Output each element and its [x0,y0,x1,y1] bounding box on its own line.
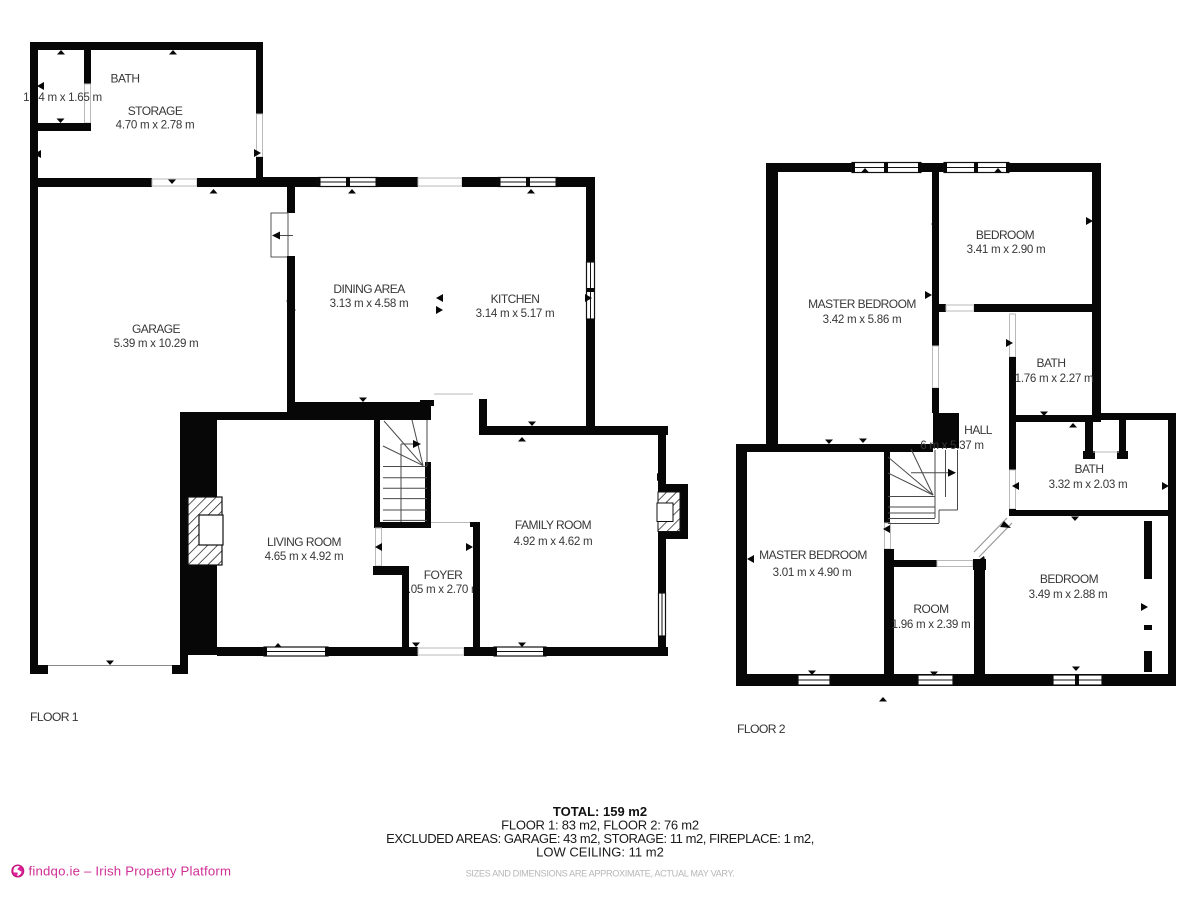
svg-text:1.96 m x 2.39 m: 1.96 m x 2.39 m [892,618,971,631]
svg-text:STORAGE: STORAGE [128,104,183,118]
svg-text:4.65 m x 4.92 m: 4.65 m x 4.92 m [265,550,344,563]
svg-text:4.92 m x 4.62 m: 4.92 m x 4.62 m [514,535,593,548]
svg-text:MASTER BEDROOM: MASTER BEDROOM [759,548,867,562]
svg-text:2.05 m x 2.70 m: 2.05 m x 2.70 m [402,583,481,596]
svg-text:KITCHEN: KITCHEN [491,292,540,306]
svg-text:BEDROOM: BEDROOM [1040,572,1099,586]
svg-text:FOYER: FOYER [424,568,463,582]
svg-text:5.39 m x 10.29 m: 5.39 m x 10.29 m [114,337,199,350]
svg-text:1.76 m x 2.27 m: 1.76 m x 2.27 m [1015,372,1094,385]
svg-text:FLOOR 1: FLOOR 1 [30,710,79,724]
svg-text:findqo.ie – Irish Property Pla: findqo.ie – Irish Property Platform [29,864,232,879]
svg-text:BATH: BATH [111,72,140,86]
svg-text:BATH: BATH [1075,462,1104,476]
svg-text:6 m x 5.37 m: 6 m x 5.37 m [920,439,983,452]
svg-text:FLOOR 2: FLOOR 2 [737,722,786,736]
svg-text:3.49 m x 2.88 m: 3.49 m x 2.88 m [1029,588,1108,601]
svg-text:GARAGE: GARAGE [132,322,181,336]
svg-text:SIZES AND DIMENSIONS ARE APPRO: SIZES AND DIMENSIONS ARE APPROXIMATE, AC… [466,869,735,879]
svg-text:DINING AREA: DINING AREA [333,282,405,296]
svg-text:4.70 m x 2.78 m: 4.70 m x 2.78 m [116,119,195,132]
svg-text:3.32 m x 2.03 m: 3.32 m x 2.03 m [1049,478,1128,491]
svg-text:FAMILY ROOM: FAMILY ROOM [515,518,592,532]
svg-text:3.14 m x 5.17 m: 3.14 m x 5.17 m [476,307,555,320]
svg-text:MASTER BEDROOM: MASTER BEDROOM [808,297,916,311]
svg-text:3.01 m x 4.90 m: 3.01 m x 4.90 m [773,566,852,579]
svg-text:3.13 m x 4.58 m: 3.13 m x 4.58 m [330,297,409,310]
svg-text:ROOM: ROOM [913,602,949,616]
svg-text:BATH: BATH [1037,356,1066,370]
svg-text:3.42 m x 5.86 m: 3.42 m x 5.86 m [823,313,902,326]
svg-text:HALL: HALL [964,423,993,437]
svg-text:BEDROOM: BEDROOM [976,228,1035,242]
svg-text:LOW CEILING: 11 m2: LOW CEILING: 11 m2 [536,845,664,860]
svg-text:3.41 m x 2.90 m: 3.41 m x 2.90 m [967,243,1046,256]
svg-text:LIVING ROOM: LIVING ROOM [267,535,342,549]
